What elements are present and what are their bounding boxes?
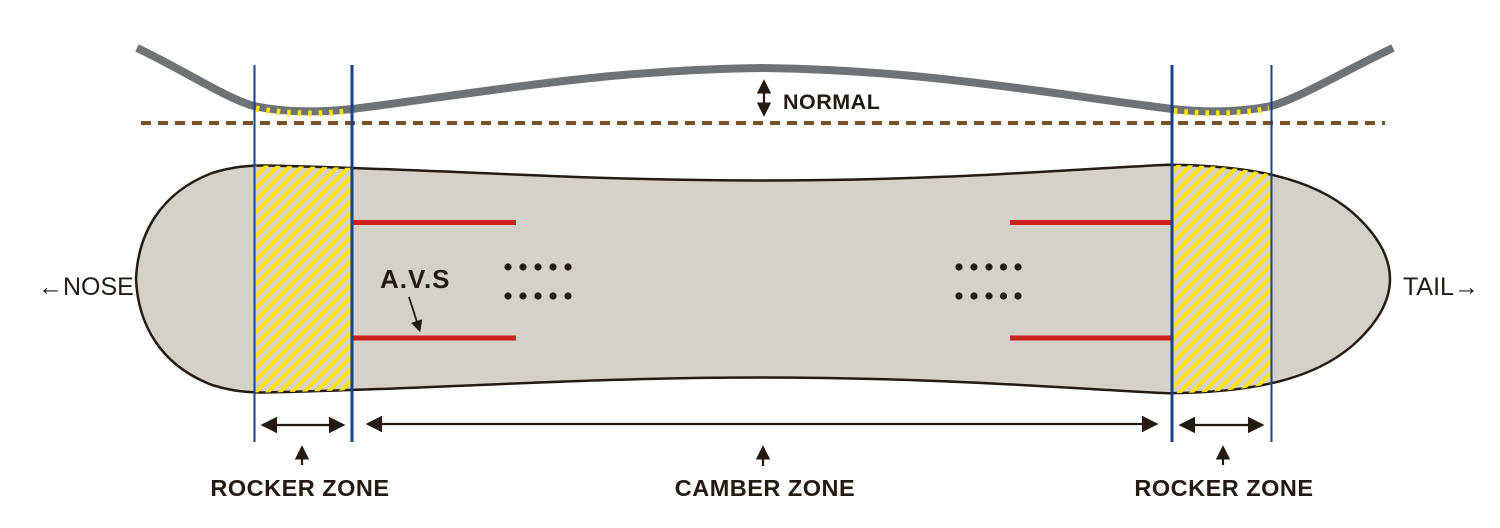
insert-dot: [564, 292, 571, 299]
insert-dot: [519, 292, 526, 299]
insert-dot: [955, 263, 962, 270]
insert-dot: [970, 292, 977, 299]
insert-dot: [1000, 292, 1007, 299]
nose-label: ←NOSE: [38, 273, 134, 301]
normal-label: NORMAL: [783, 90, 880, 114]
avs-label: A.V.S: [380, 264, 451, 294]
insert-dot: [985, 263, 992, 270]
insert-dot: [985, 292, 992, 299]
insert-dot: [504, 292, 511, 299]
insert-dot: [970, 263, 977, 270]
side-profile: NORMAL: [137, 48, 1393, 123]
rocker-zone-left-label: ROCKER ZONE: [210, 475, 389, 501]
board-top-view: A.V.S: [136, 150, 1390, 410]
insert-dot: [1014, 263, 1021, 270]
rocker-zone-right-label: ROCKER ZONE: [1134, 475, 1313, 501]
rocker-zone-hatch-right: [1172, 150, 1272, 410]
insert-dot: [1014, 292, 1021, 299]
rocker-zone-hatch-left: [254, 150, 352, 410]
insert-dot: [1000, 263, 1007, 270]
insert-dot: [519, 263, 526, 270]
diagram-canvas: NORMAL: [0, 0, 1500, 528]
zone-dimension-arrows: [263, 424, 1262, 466]
insert-dot: [549, 292, 556, 299]
insert-dot: [955, 292, 962, 299]
insert-dot: [534, 292, 541, 299]
tail-label: TAIL→: [1403, 273, 1479, 301]
insert-dot: [534, 263, 541, 270]
snowboard-camber-diagram: NORMAL: [0, 0, 1500, 528]
camber-zone-label: CAMBER ZONE: [675, 475, 855, 501]
insert-dot: [504, 263, 511, 270]
insert-dot: [549, 263, 556, 270]
insert-dot: [564, 263, 571, 270]
